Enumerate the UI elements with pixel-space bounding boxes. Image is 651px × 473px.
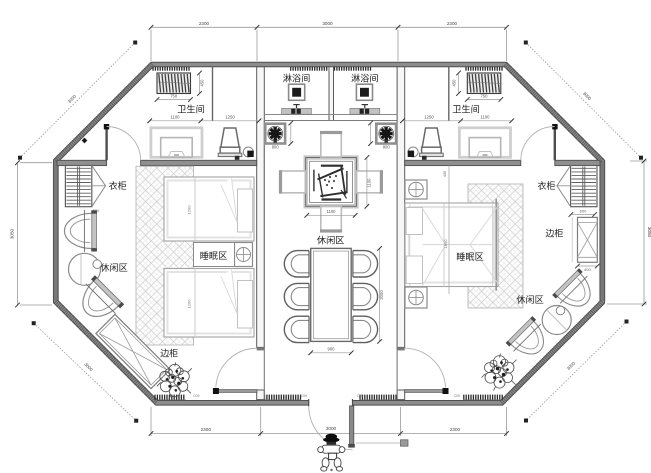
svg-text:1100: 1100 xyxy=(326,209,336,214)
svg-text:900: 900 xyxy=(328,347,336,352)
svg-text:750: 750 xyxy=(481,93,489,98)
svg-text:淋浴间: 淋浴间 xyxy=(283,73,311,84)
svg-text:450: 450 xyxy=(452,79,457,87)
svg-text:750: 750 xyxy=(170,93,178,98)
svg-text:2300: 2300 xyxy=(201,427,212,432)
svg-text:3050: 3050 xyxy=(10,228,15,239)
svg-text:1250: 1250 xyxy=(424,115,434,120)
svg-text:1250: 1250 xyxy=(225,115,235,120)
svg-text:2300: 2300 xyxy=(450,427,461,432)
svg-text:800: 800 xyxy=(383,145,391,150)
svg-text:C09: C09 xyxy=(193,394,199,398)
svg-text:2300: 2300 xyxy=(447,21,458,26)
svg-text:600: 600 xyxy=(580,209,587,214)
svg-text:淋浴间: 淋浴间 xyxy=(351,73,379,84)
svg-text:3000: 3000 xyxy=(326,426,337,431)
svg-text:休闲区: 休闲区 xyxy=(516,294,544,305)
svg-text:3050: 3050 xyxy=(647,227,651,238)
svg-text:3000: 3000 xyxy=(322,21,333,26)
svg-text:C09: C09 xyxy=(357,394,363,398)
svg-text:睡眠区: 睡眠区 xyxy=(456,251,484,262)
svg-text:800: 800 xyxy=(272,145,280,150)
svg-text:1100: 1100 xyxy=(480,115,490,120)
svg-text:衣柜: 衣柜 xyxy=(109,180,127,191)
svg-text:休闲区: 休闲区 xyxy=(317,235,345,246)
svg-text:C09: C09 xyxy=(301,394,307,398)
svg-text:C09: C09 xyxy=(454,394,460,398)
svg-text:睡眠区: 睡眠区 xyxy=(200,250,228,261)
svg-text:衣柜: 衣柜 xyxy=(537,180,555,191)
svg-text:1100: 1100 xyxy=(367,178,372,188)
svg-text:卫生间: 卫生间 xyxy=(177,103,205,114)
svg-text:卫生间: 卫生间 xyxy=(452,103,480,114)
svg-text:450: 450 xyxy=(199,79,204,87)
svg-text:休闲区: 休闲区 xyxy=(100,262,128,273)
svg-text:边柜: 边柜 xyxy=(160,347,178,358)
svg-text:400: 400 xyxy=(584,267,591,272)
svg-text:边柜: 边柜 xyxy=(545,227,563,238)
svg-text:1800: 1800 xyxy=(443,239,448,249)
svg-text:1200: 1200 xyxy=(187,299,192,309)
svg-text:2000: 2000 xyxy=(379,290,384,300)
svg-text:1100: 1100 xyxy=(170,115,180,120)
svg-text:400: 400 xyxy=(443,171,447,177)
svg-text:2300: 2300 xyxy=(199,21,210,26)
svg-text:1200: 1200 xyxy=(187,205,192,215)
